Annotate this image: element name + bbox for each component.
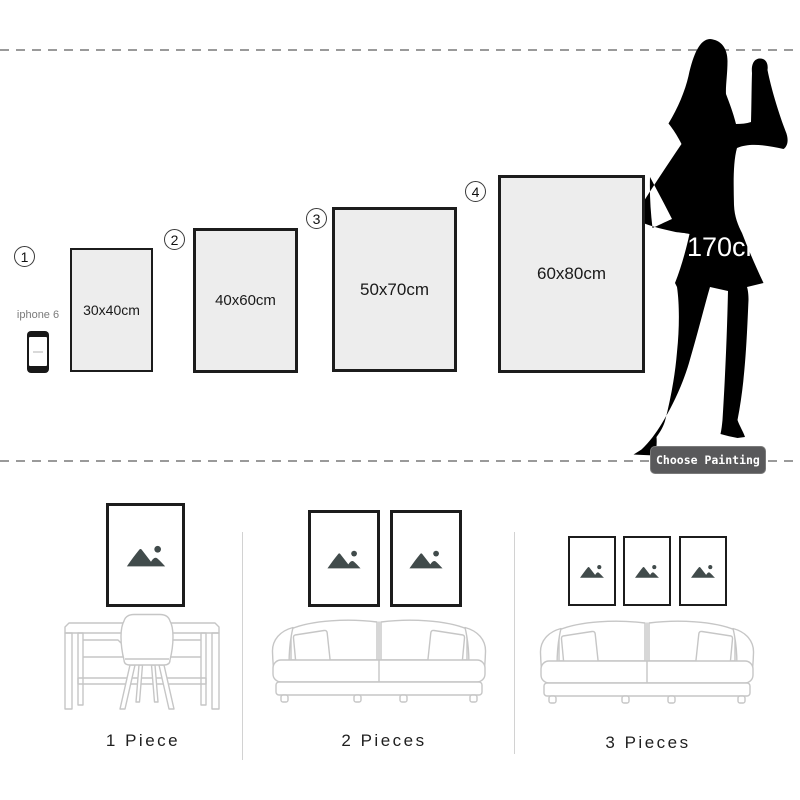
sofa-illustration: [532, 613, 762, 705]
scene-label-2-pieces: 2 Pieces: [341, 731, 426, 751]
scene-label-1-piece: 1 Piece: [106, 731, 180, 751]
size-frame-60x80: 60x80cm: [498, 175, 645, 373]
image-placeholder-icon: [326, 548, 362, 570]
wall-art-frame: [308, 510, 380, 607]
size-frame-50x70: 50x70cm: [332, 207, 457, 372]
iphone-screen-mark: [33, 351, 43, 353]
size-number-badge-3: 3: [306, 208, 327, 229]
wall-art-frame: [568, 536, 616, 606]
image-placeholder-icon: [408, 548, 444, 570]
size-frame-label-40x60: 40x60cm: [215, 292, 276, 309]
iphone-reference-label: iphone 6: [17, 309, 59, 321]
size-guide-infographic: 1 2 3 4 30x40cm 40x60cm 50x70cm 60x80cm …: [0, 0, 800, 800]
wall-art-frame: [106, 503, 185, 607]
scene-divider-1: [242, 532, 243, 760]
person-height-label: 170cm: [687, 232, 768, 263]
wall-art-frame: [390, 510, 462, 607]
iphone-screen: [29, 337, 47, 366]
size-number-badge-1: 1: [14, 246, 35, 267]
scene-label-3-pieces: 3 Pieces: [605, 733, 690, 753]
size-number-4: 4: [472, 184, 480, 200]
image-placeholder-icon: [634, 563, 660, 579]
size-number-badge-4: 4: [465, 181, 486, 202]
scene-divider-2: [514, 532, 515, 754]
size-frame-label-30x40: 30x40cm: [83, 302, 140, 318]
image-placeholder-icon: [125, 543, 167, 568]
sofa-illustration: [264, 612, 494, 704]
iphone-icon: [27, 331, 49, 373]
size-number-badge-2: 2: [164, 229, 185, 250]
size-frame-label-60x80: 60x80cm: [537, 264, 606, 284]
desk-and-chair-illustration: [62, 612, 222, 712]
size-number-3: 3: [313, 211, 321, 227]
size-frame-40x60: 40x60cm: [193, 228, 298, 373]
size-number-2: 2: [171, 232, 179, 248]
image-placeholder-icon: [579, 563, 605, 579]
wall-art-frame: [679, 536, 727, 606]
image-placeholder-icon: [690, 563, 716, 579]
wall-art-frame: [623, 536, 671, 606]
choose-painting-button[interactable]: Choose Painting: [650, 446, 766, 474]
size-frame-30x40: 30x40cm: [70, 248, 153, 372]
size-number-1: 1: [21, 249, 29, 265]
size-frame-label-50x70: 50x70cm: [360, 280, 429, 300]
